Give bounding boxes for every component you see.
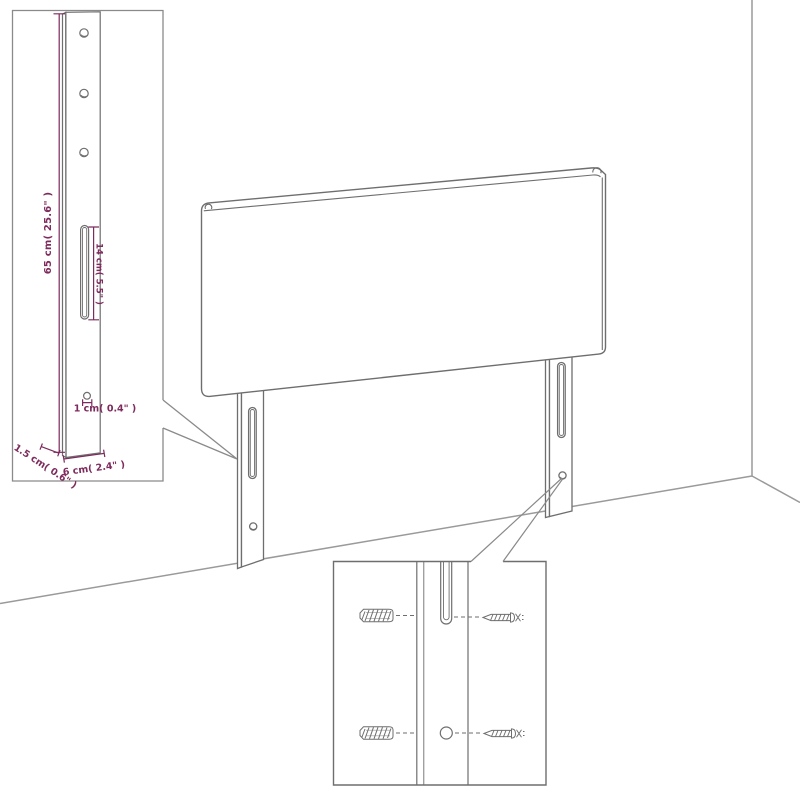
diagram-stage: 65 cm( 25.6" ) 14 cm( 5.5" ) 1 cm( 0.4" … bbox=[0, 0, 800, 800]
inset-pointer-lines bbox=[471, 478, 563, 562]
right-leg-front-face bbox=[550, 349, 573, 517]
headboard-left-leg bbox=[238, 381, 264, 569]
inset-pointer-lines bbox=[163, 400, 237, 459]
slot-length-dimension-label: 14 cm( 5.5" ) bbox=[94, 243, 103, 305]
diagram-canvas bbox=[0, 0, 800, 800]
left-leg-front-face bbox=[242, 381, 264, 567]
inset-box-border bbox=[334, 562, 547, 786]
floor-line-right bbox=[752, 476, 800, 503]
height-dimension-label: 65 cm( 25.6" ) bbox=[44, 192, 54, 275]
headboard-right-leg bbox=[546, 349, 573, 518]
hole-diameter-dimension-label: 1 cm( 0.4" ) bbox=[74, 404, 137, 414]
mounting-detail-inset bbox=[334, 478, 564, 785]
